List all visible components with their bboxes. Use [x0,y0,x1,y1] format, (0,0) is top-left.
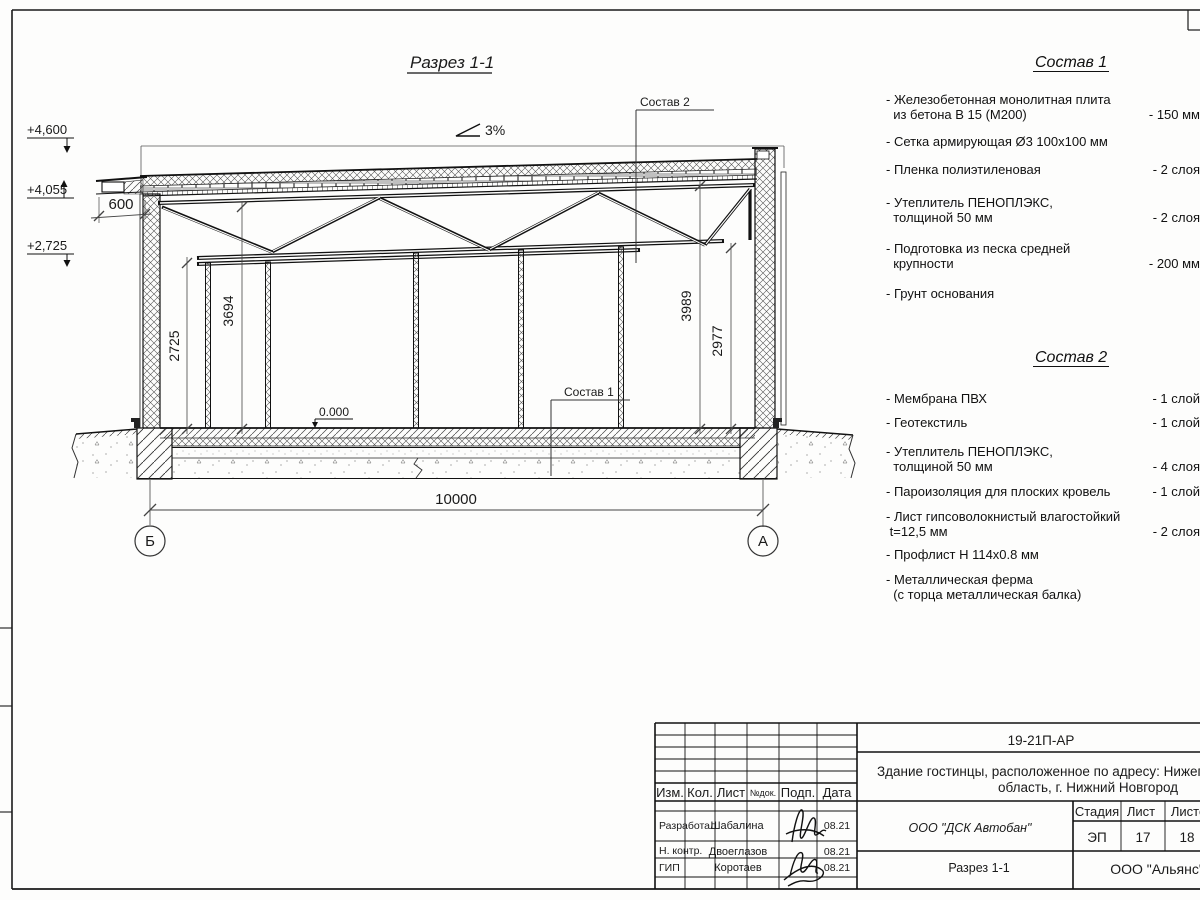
material-item: - Геотекстиль - 1 слой [886,415,1200,430]
sostav2-list: Состав 2 - Мембрана ПВХ - 1 слой - Геоте… [886,350,1200,602]
dim-2977: 2977 [709,243,736,434]
col-data: Дата [823,785,853,800]
cap-box-detail [102,182,124,192]
svg-text:600: 600 [108,196,133,213]
interior-columns [206,247,624,428]
svg-text:3694: 3694 [220,295,236,326]
floor-screed [160,428,755,438]
left-parapet-cap [96,177,147,194]
left-wall [140,194,160,428]
sheet-value: 17 [1135,830,1150,845]
doc-code: 19-21П-АР [1008,733,1075,748]
concrete-slab [172,458,740,478]
material-item: - Мембрана ПВХ - 1 слой [886,391,1200,406]
axis-left: Б [135,526,165,556]
column [206,263,211,428]
sheets-label: Листов [1171,804,1200,819]
foundation-right [740,428,777,479]
column [519,250,524,428]
elevation-top: +4,600 [27,122,74,153]
titleblock-signature-rows: Разработал Шабалина 08.21 Н. контр. Двое… [659,810,850,886]
elevation-floor: 0.000 [312,405,353,428]
material-item: - Утеплитель ПЕНОПЛЭКС, толщиной 50 мм -… [886,444,1200,474]
material-item: - Пленка полиэтиленовая - 2 слоя [886,162,1200,177]
svg-text:2977: 2977 [709,325,725,356]
sheet-label: Лист [1127,804,1155,819]
material-item: - Лист гипсоволокнистый влагостойкий t=1… [886,509,1200,539]
svg-text:+4,055: +4,055 [27,182,67,197]
floor-assembly [137,428,777,479]
column [414,253,419,428]
col-izm: Изм. [656,785,684,800]
col-list: Лист [717,785,745,800]
building-section [72,146,855,479]
svg-text:0.000: 0.000 [319,405,349,419]
view-title: Разрез 1-1 [410,53,494,72]
svg-text:А: А [758,533,768,550]
column [619,247,624,428]
material-item: - Металлическая ферма (с торца металличе… [886,572,1200,602]
sostav1-heading: Состав 1 [1033,55,1109,72]
role-developer: Разработал [659,820,716,832]
roof-assembly [140,159,757,196]
material-item: - Сетка армирующая Ø3 100х100 мм [886,134,1200,149]
sostav1-list: Состав 1 - Железобетонная монолитная пли… [886,55,1200,301]
material-item: - Грунт основания [886,286,1200,301]
material-item: - Утеплитель ПЕНОПЛЭКС, толщиной 50 мм -… [886,195,1200,225]
svg-text:2725: 2725 [166,330,182,361]
dim-3989: 3989 [678,181,705,434]
svg-text:Б: Б [145,533,155,550]
role-gip: ГИП [659,862,680,874]
drawing-name: Разрез 1-1 [948,861,1009,875]
ground-right [777,429,855,478]
ground-left [72,429,137,478]
svg-text:10000: 10000 [435,491,477,508]
material-item: - Железобетонная монолитная плита из бет… [886,92,1200,122]
right-wall [752,148,786,428]
name-gip: Коротаев [714,862,762,874]
slope-mark: 3% [456,122,505,138]
col-ndok: №док. [750,788,776,798]
slope-value: 3% [485,122,505,138]
material-item: - Пароизоляция для плоских кровель - 1 с… [886,484,1200,499]
sheets-value: 18 [1179,830,1194,845]
sand-layer [172,448,740,458]
floor-insulation [172,438,740,446]
down-arrow-icon [64,260,71,267]
title-block: Изм. Кол. Лист №док. Подп. Дата Разработ… [655,723,1200,889]
sostav2-heading: Состав 2 [1033,350,1109,367]
project-name-line2: область, г. Нижний Новгород [998,780,1178,795]
col-kol: Кол. [687,785,713,800]
foundation-left [137,428,172,479]
svg-text:+4,600: +4,600 [27,122,67,137]
organization: ООО "Альянс" [1110,861,1200,877]
axis-right: А [748,526,778,556]
plinth-details [131,418,782,428]
titleblock-right: 19-21П-АР Здание гостинцы, расположенное… [877,733,1200,877]
name-developer: Шабалина [710,820,764,832]
date-gip: 08.21 [824,862,850,874]
dim-2725: 2725 [166,257,192,434]
svg-text:Состав 2: Состав 2 [640,95,690,109]
steel-truss [158,185,755,264]
slope-icon [456,124,480,136]
dim-span: 10000 [144,480,769,527]
svg-text:Состав 1: Состав 1 [564,385,614,399]
project-name-line1: Здание гостинцы, расположенное по адресу… [877,764,1200,779]
role-ncontrol: Н. контр. [659,845,702,857]
stage-value: ЭП [1087,830,1106,845]
svg-text:3989: 3989 [678,290,694,321]
column [266,262,271,428]
material-item: - Профлист Н 114х0.8 мм [886,547,1200,562]
drawing-sheet: { "drawing": { "title": "Разрез 1-1", "s… [0,0,1200,900]
material-item: - Подготовка из песка средней крупности … [886,241,1200,271]
down-arrow-icon [64,146,71,153]
svg-text:+2,725: +2,725 [27,238,67,253]
stage-label: Стадия [1075,804,1119,819]
titleblock-header-row: Изм. Кол. Лист №док. Подп. Дата [656,785,852,800]
signature-icon [786,810,826,842]
col-podp: Подп. [781,785,816,800]
elevation-truss: +2,725 [27,238,74,267]
contractor: ООО "ДСК Автобан" [909,821,1033,835]
name-ncontrol: Двоеглазов [709,846,768,858]
date-ncontrol: 08.21 [824,846,850,858]
wall-outer-strip [781,172,786,425]
date-developer: 08.21 [824,820,850,832]
elevation-parapet: +4,055 [27,180,74,198]
